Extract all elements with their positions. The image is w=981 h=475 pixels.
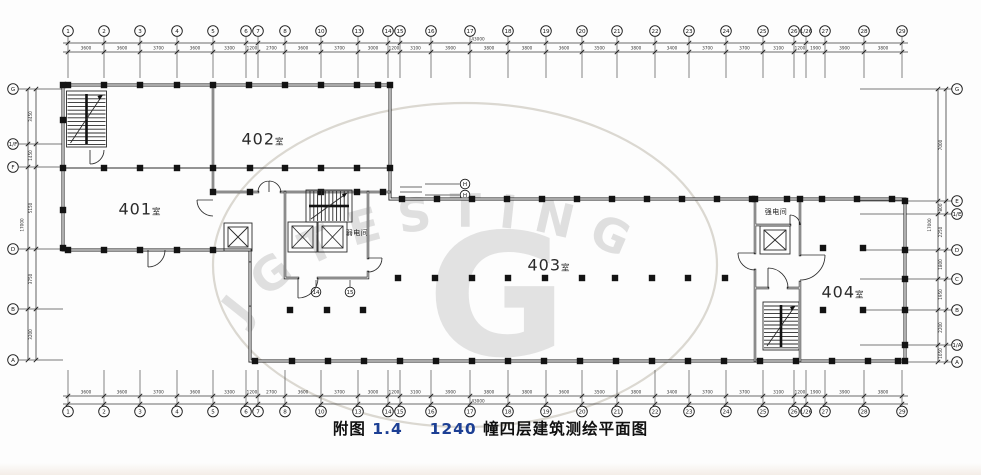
svg-text:3800: 3800: [878, 46, 889, 51]
svg-text:2: 2: [102, 410, 106, 416]
scan-artifact-strip: [0, 463, 981, 475]
svg-text:3300: 3300: [224, 46, 235, 51]
svg-text:21: 21: [613, 29, 621, 35]
svg-text:800: 800: [938, 203, 943, 211]
svg-text:43000: 43000: [471, 36, 485, 41]
svg-text:3900: 3900: [839, 46, 850, 51]
svg-text:25: 25: [759, 410, 767, 416]
svg-text:2: 2: [102, 29, 106, 35]
svg-text:3100: 3100: [773, 46, 784, 51]
svg-text:1450: 1450: [28, 150, 33, 161]
svg-text:3600: 3600: [190, 46, 201, 51]
svg-text:2250: 2250: [938, 226, 943, 237]
svg-text:1900: 1900: [810, 390, 821, 395]
svg-text:15: 15: [396, 29, 404, 35]
svg-text:29: 29: [898, 29, 906, 35]
svg-text:3800: 3800: [631, 390, 642, 395]
svg-text:3: 3: [138, 29, 142, 35]
svg-text:5: 5: [211, 410, 215, 416]
svg-text:3: 3: [138, 410, 142, 416]
svg-text:1/26: 1/26: [800, 29, 813, 35]
svg-text:3700: 3700: [334, 390, 345, 395]
svg-text:3600: 3600: [117, 46, 128, 51]
svg-text:3400: 3400: [667, 390, 678, 395]
svg-text:4: 4: [175, 410, 179, 416]
caption-figure-label: 附图: [333, 420, 366, 438]
svg-text:16: 16: [427, 410, 435, 416]
svg-text:G: G: [955, 87, 959, 93]
svg-text:3800: 3800: [522, 390, 533, 395]
svg-text:2700: 2700: [266, 46, 277, 51]
svg-text:1900: 1900: [810, 46, 821, 51]
svg-text:23: 23: [685, 29, 693, 35]
svg-text:3600: 3600: [117, 390, 128, 395]
svg-text:17000: 17000: [927, 218, 932, 232]
svg-text:1200: 1200: [389, 46, 400, 51]
svg-text:1/26: 1/26: [800, 410, 813, 416]
svg-text:24: 24: [722, 410, 730, 416]
svg-text:20: 20: [578, 410, 586, 416]
svg-text:17: 17: [466, 29, 474, 35]
svg-text:3400: 3400: [667, 46, 678, 51]
svg-text:25: 25: [759, 29, 767, 35]
floorplan-figure: JGTESTING G 1360023600337004360053300612…: [0, 0, 981, 475]
svg-text:3500: 3500: [594, 390, 605, 395]
svg-text:8: 8: [283, 29, 287, 35]
svg-text:10: 10: [317, 410, 325, 416]
svg-text:7: 7: [256, 410, 260, 416]
room-label-404: 404室: [821, 283, 864, 302]
svg-text:3700: 3700: [153, 46, 164, 51]
svg-text:18: 18: [504, 410, 512, 416]
svg-text:10: 10: [317, 29, 325, 35]
svg-text:1: 1: [66, 410, 70, 416]
svg-text:6: 6: [244, 29, 248, 35]
svg-text:3600: 3600: [559, 46, 570, 51]
svg-text:3200: 3200: [28, 329, 33, 340]
floorplan-svg: JGTESTING G 1360023600337004360053300612…: [0, 0, 981, 475]
svg-text:7: 7: [256, 29, 260, 35]
svg-text:1200: 1200: [247, 46, 258, 51]
svg-text:43000: 43000: [471, 398, 485, 403]
svg-text:23: 23: [685, 410, 693, 416]
svg-text:B: B: [11, 307, 15, 313]
svg-text:3800: 3800: [484, 46, 495, 51]
svg-text:1/E: 1/E: [953, 212, 962, 218]
svg-text:1: 1: [66, 29, 70, 35]
svg-text:A: A: [11, 358, 15, 364]
svg-text:3700: 3700: [739, 390, 750, 395]
svg-text:17: 17: [466, 410, 474, 416]
svg-text:1950: 1950: [938, 289, 943, 300]
svg-text:D: D: [11, 247, 15, 253]
svg-text:3700: 3700: [153, 390, 164, 395]
room-label-402: 402室: [241, 130, 284, 149]
svg-text:3100: 3100: [410, 390, 421, 395]
svg-text:3800: 3800: [631, 46, 642, 51]
svg-text:3900: 3900: [445, 46, 456, 51]
svg-text:17000: 17000: [20, 218, 25, 232]
svg-text:13: 13: [354, 29, 362, 35]
svg-text:H: H: [463, 182, 467, 188]
weak-current-room-label: 弱电间: [346, 228, 369, 238]
svg-text:3700: 3700: [702, 390, 713, 395]
svg-text:3700: 3700: [739, 46, 750, 51]
svg-text:3800: 3800: [878, 390, 889, 395]
svg-text:3750: 3750: [28, 273, 33, 284]
svg-text:F: F: [11, 165, 14, 171]
svg-text:21: 21: [613, 410, 621, 416]
svg-text:8: 8: [283, 410, 287, 416]
svg-text:5: 5: [211, 29, 215, 35]
svg-text:1200: 1200: [795, 390, 806, 395]
svg-text:3000: 3000: [368, 46, 379, 51]
svg-text:3450: 3450: [28, 111, 33, 122]
strong-current-room-label: 强电间: [765, 207, 788, 217]
svg-text:14: 14: [384, 410, 392, 416]
svg-text:1200: 1200: [247, 390, 258, 395]
svg-text:19: 19: [542, 29, 550, 35]
svg-text:26: 26: [790, 29, 798, 35]
svg-text:1200: 1200: [389, 390, 400, 395]
svg-text:2200: 2200: [938, 322, 943, 333]
svg-text:19: 19: [542, 410, 550, 416]
room-label-403: 403室: [527, 256, 570, 275]
svg-text:16: 16: [427, 29, 435, 35]
svg-text:24: 24: [722, 29, 730, 35]
svg-text:G: G: [11, 87, 15, 93]
svg-text:3600: 3600: [559, 390, 570, 395]
svg-text:1800: 1800: [938, 259, 943, 270]
svg-text:C: C: [955, 277, 959, 283]
svg-text:3900: 3900: [445, 390, 456, 395]
svg-text:3100: 3100: [773, 390, 784, 395]
svg-text:14: 14: [384, 29, 392, 35]
svg-text:A: A: [955, 360, 959, 366]
svg-text:3600: 3600: [81, 390, 92, 395]
svg-text:15: 15: [346, 290, 354, 296]
watermark-big-letter: G: [427, 198, 567, 396]
svg-text:1/A: 1/A: [952, 343, 961, 349]
svg-text:3800: 3800: [484, 390, 495, 395]
svg-text:3600: 3600: [81, 46, 92, 51]
svg-text:6: 6: [244, 410, 248, 416]
svg-text:1200: 1200: [795, 46, 806, 51]
svg-text:3900: 3900: [839, 390, 850, 395]
svg-text:18: 18: [504, 29, 512, 35]
svg-text:27: 27: [821, 410, 829, 416]
svg-text:1/F: 1/F: [9, 142, 18, 148]
svg-text:3800: 3800: [522, 46, 533, 51]
svg-text:22: 22: [651, 410, 658, 416]
room-label-401: 401室: [118, 200, 161, 219]
svg-text:22: 22: [651, 29, 658, 35]
svg-text:D: D: [955, 248, 959, 254]
svg-text:3600: 3600: [298, 46, 309, 51]
svg-text:3500: 3500: [594, 46, 605, 51]
svg-text:15: 15: [396, 410, 404, 416]
figure-caption: 附图 1.4 1240 幢四层建筑测绘平面图: [0, 417, 981, 439]
svg-text:3600: 3600: [298, 390, 309, 395]
svg-text:3700: 3700: [702, 46, 713, 51]
svg-text:3300: 3300: [224, 390, 235, 395]
svg-text:13: 13: [354, 410, 362, 416]
svg-text:3600: 3600: [190, 390, 201, 395]
svg-text:27: 27: [821, 29, 829, 35]
svg-text:4: 4: [175, 29, 179, 35]
svg-text:E: E: [955, 199, 959, 205]
svg-text:2700: 2700: [266, 390, 277, 395]
svg-text:3700: 3700: [334, 46, 345, 51]
svg-text:3100: 3100: [410, 46, 421, 51]
caption-figure-number: 1.4: [372, 420, 402, 438]
svg-text:26: 26: [790, 410, 798, 416]
svg-text:20: 20: [578, 29, 586, 35]
svg-text:B: B: [955, 308, 959, 314]
svg-text:28: 28: [860, 29, 868, 35]
svg-text:28: 28: [860, 410, 868, 416]
caption-building-number: 1240: [430, 420, 477, 438]
caption-title: 幢四层建筑测绘平面图: [483, 420, 648, 438]
svg-text:3000: 3000: [368, 390, 379, 395]
svg-text:7000: 7000: [938, 139, 943, 150]
svg-text:29: 29: [898, 410, 906, 416]
svg-text:1050: 1050: [938, 348, 943, 359]
svg-text:5150: 5150: [28, 202, 33, 213]
